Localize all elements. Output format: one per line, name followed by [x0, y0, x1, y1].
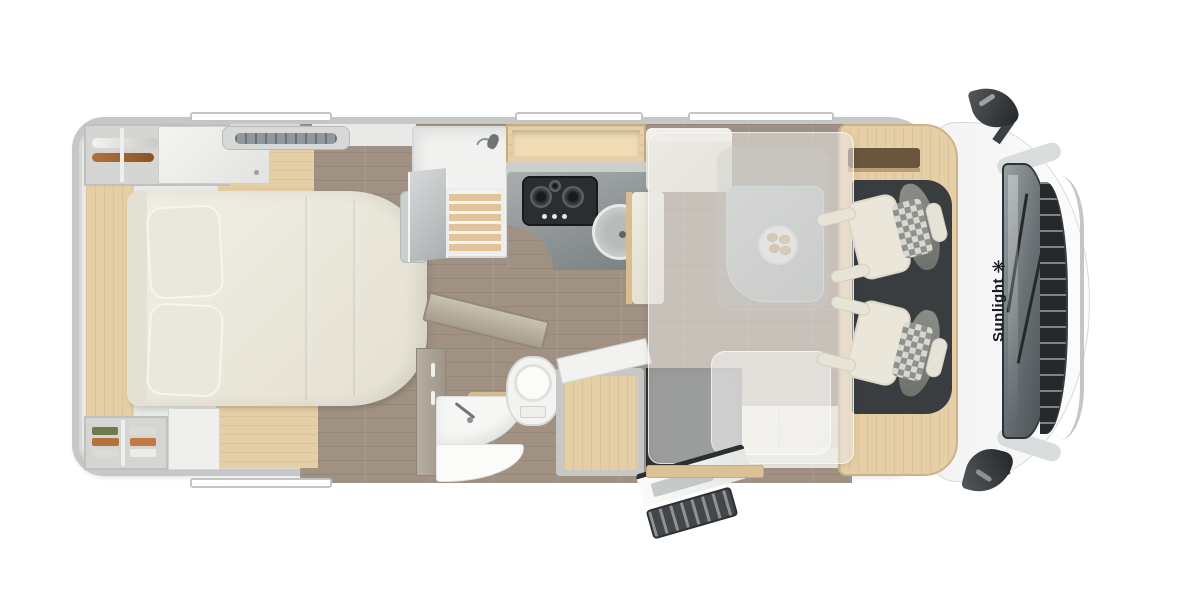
mirror-glint — [975, 469, 993, 483]
hob-knob — [552, 214, 557, 219]
duvet-seam — [305, 196, 307, 400]
shelf-divider — [121, 420, 125, 466]
basin-faucet — [455, 402, 476, 419]
pillow — [146, 204, 225, 300]
folded-clothes — [92, 438, 119, 446]
hob-knob — [562, 214, 567, 219]
cabinet-open-shelf — [512, 130, 640, 156]
locker-handle — [254, 170, 259, 175]
island-bed — [127, 191, 427, 406]
wardrobe-divider — [120, 128, 124, 182]
wall-window-slot — [688, 112, 834, 122]
hob-burner — [562, 186, 584, 208]
shower-tray — [446, 188, 504, 254]
hob-burner — [530, 186, 552, 208]
towel-hook — [431, 363, 435, 377]
hob-burner-small — [549, 180, 561, 192]
clothes-shelves — [84, 416, 168, 470]
shower-glass-door — [408, 168, 448, 262]
motorhome-floorplan: Sunlight — [0, 0, 1200, 600]
folded-clothes — [92, 427, 118, 435]
mirror-glint — [978, 93, 996, 107]
towel-hook — [431, 391, 435, 405]
cab-overhead-locker — [848, 148, 920, 168]
sunlight-logo: Sunlight — [990, 241, 1006, 361]
toilet-flush — [520, 406, 546, 418]
wall-window-slot — [190, 112, 332, 122]
front-bumper-chrome — [1060, 176, 1084, 440]
hob-knob — [542, 214, 547, 219]
brand-name: Sunlight — [990, 278, 1007, 342]
folded-clothes — [92, 449, 118, 457]
drop-down-bed-overlay — [648, 132, 854, 464]
duvet-seam — [353, 200, 355, 396]
sun-icon — [992, 260, 1005, 273]
wall-window-slot — [515, 112, 643, 122]
sink-drain — [619, 231, 626, 238]
drop-down-bed-panel — [711, 351, 831, 455]
gas-hob — [522, 176, 598, 226]
toilet-seat — [514, 364, 552, 402]
folded-clothes — [130, 438, 156, 446]
folded-clothes — [130, 449, 156, 457]
bed-headboard — [127, 191, 147, 406]
entry-threshold — [646, 465, 764, 478]
entry-step-box — [564, 376, 638, 470]
pillow — [146, 302, 225, 398]
toilet — [506, 356, 560, 426]
basin-drain — [467, 417, 473, 423]
glass-glint — [1008, 175, 1018, 425]
roof-vent — [222, 126, 350, 150]
bedroom-floor-foot — [216, 398, 318, 468]
entry-step-box-frame — [556, 368, 644, 476]
drawer-front — [168, 408, 220, 470]
drop-down-bed-panel — [717, 147, 829, 311]
roof-vent-grid — [235, 133, 337, 144]
hanging-clothes-white — [92, 138, 158, 148]
locker-shelf-edge — [848, 168, 920, 172]
folded-clothes — [130, 427, 156, 435]
wall-window-slot — [190, 478, 332, 488]
